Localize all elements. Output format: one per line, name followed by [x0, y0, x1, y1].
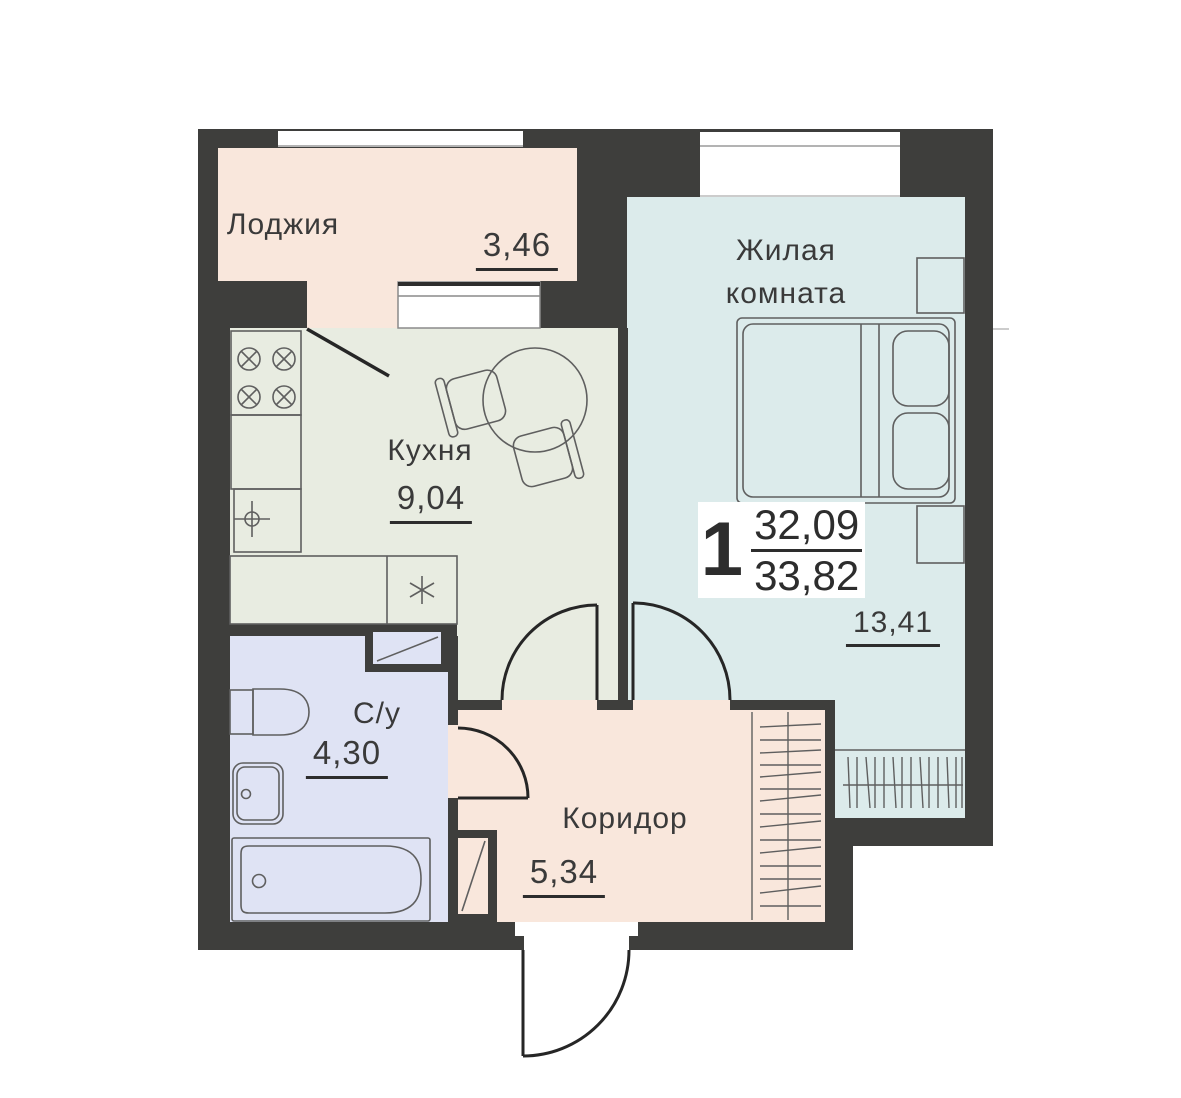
apartment-total-area: 33,82 — [751, 552, 862, 597]
room-area-bathroom: 4,30 — [306, 734, 388, 779]
window-loggia-glazing — [278, 131, 523, 147]
room-area-loggia: 3,46 — [476, 226, 558, 271]
apartment-living-area: 32,09 — [751, 504, 862, 552]
room-label-living: Жилая комната — [726, 230, 846, 315]
apartment-rooms-count: 1 — [701, 518, 743, 583]
room-label-corridor: Коридор — [562, 798, 687, 841]
room-label-bathroom: С/у — [353, 693, 401, 736]
vent-shaft-icon — [448, 830, 497, 922]
room-area-kitchen: 9,04 — [390, 479, 472, 524]
vent-shaft-icon — [365, 624, 457, 672]
room-area-living: 13,41 — [846, 606, 940, 647]
room-label-loggia: Лоджия — [227, 204, 339, 247]
floor-plan-canvas — [0, 0, 1181, 1098]
room-area-corridor: 5,34 — [523, 853, 605, 898]
room-label-kitchen: Кухня — [387, 430, 472, 473]
apartment-areas: 32,09 33,82 — [751, 504, 862, 597]
apartment-badge: 1 32,09 33,82 — [698, 502, 865, 598]
room-bathroom-floor — [228, 636, 448, 922]
floor-plan: Лоджия 3,46 Кухня 9,04 Жилая комната 13,… — [0, 0, 1181, 1098]
window-loggia-kitchen — [398, 282, 540, 328]
door-entrance — [523, 950, 629, 1056]
